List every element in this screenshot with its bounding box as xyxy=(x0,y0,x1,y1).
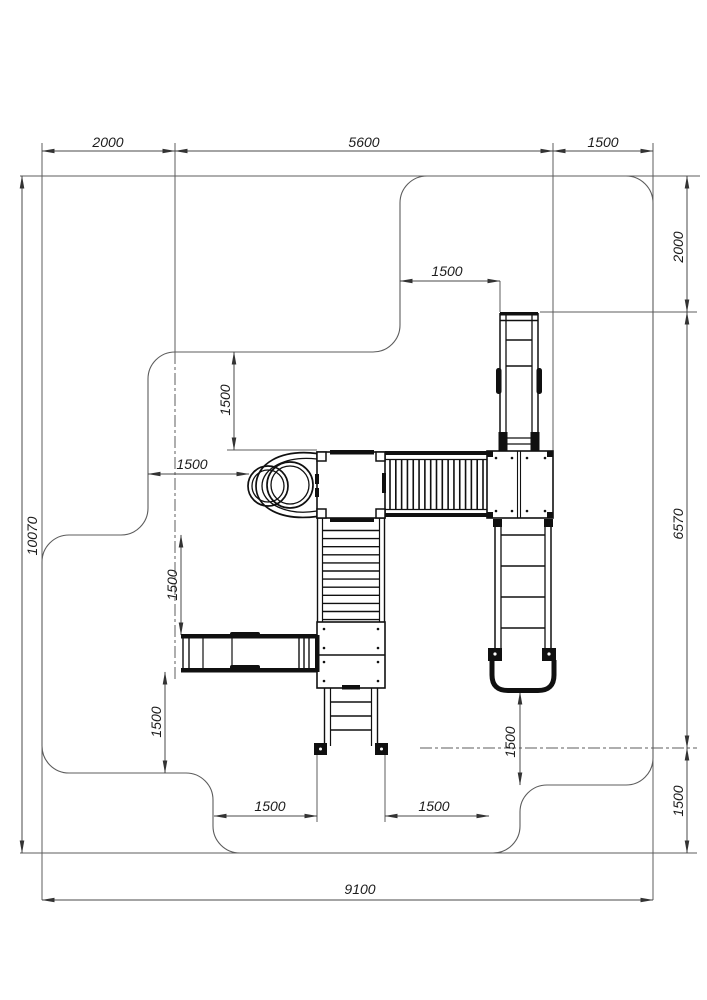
landing-platform xyxy=(315,622,385,690)
drawing-sheet: 2000 5600 1500 2000 6570 1500 10070 9100… xyxy=(0,0,707,1000)
main-platform xyxy=(315,450,386,518)
stairs xyxy=(318,518,385,622)
equipment xyxy=(181,312,556,755)
dim-label-top-2000: 2000 xyxy=(91,134,123,150)
dim-label-clearance-bottom-right: 1500 xyxy=(418,798,449,814)
dim-label-clearance-beam-upper: 1500 xyxy=(164,569,180,600)
dim-label-clearance-bottom-left: 1500 xyxy=(254,798,285,814)
tube-slide xyxy=(248,453,317,518)
dim-label-clearance-platform: 1500 xyxy=(217,384,233,415)
dim-label-bottom-9100: 9100 xyxy=(344,881,375,897)
dim-label-clearance-slide: 1500 xyxy=(176,456,207,472)
dim-label-clearance-ladder-top: 1500 xyxy=(431,263,462,279)
playground-plan-drawing: 2000 5600 1500 2000 6570 1500 10070 9100… xyxy=(0,0,707,1000)
bottom-ladder xyxy=(314,688,388,755)
dim-label-top-1500: 1500 xyxy=(587,134,618,150)
slat-bridge xyxy=(385,451,487,517)
grab-handle xyxy=(492,660,554,691)
dim-label-right-2000: 2000 xyxy=(670,231,686,263)
dim-label-right-6570: 6570 xyxy=(670,508,686,539)
right-ladder xyxy=(488,519,556,691)
dim-label-right-1500: 1500 xyxy=(670,785,686,816)
dim-label-clearance-handle: 1500 xyxy=(502,726,518,757)
dim-label-left-10070: 10070 xyxy=(24,516,40,555)
right-platform xyxy=(487,451,553,518)
dim-label-clearance-beam-lower: 1500 xyxy=(148,706,164,737)
monkey-bar-beam xyxy=(181,632,317,673)
dim-label-top-5600: 5600 xyxy=(348,134,379,150)
dimension-lines xyxy=(22,151,687,900)
top-climb-ladder xyxy=(496,312,542,451)
